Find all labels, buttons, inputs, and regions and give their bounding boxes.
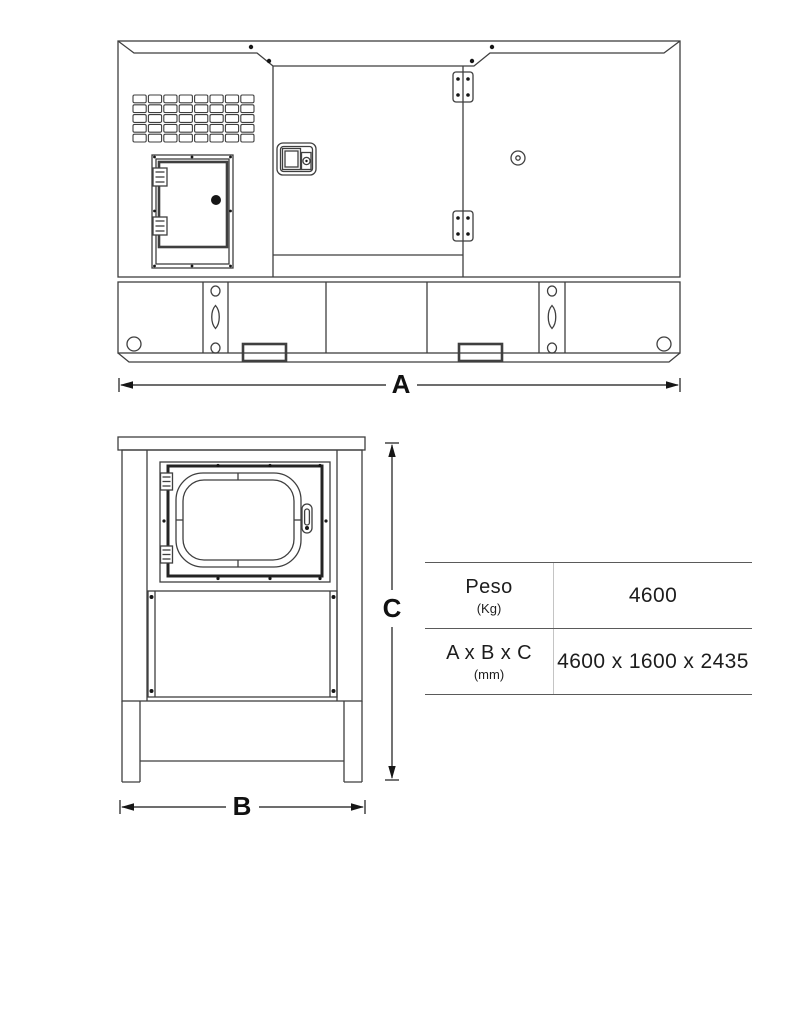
roof-screw-icons — [249, 45, 494, 63]
roof-seam — [118, 41, 680, 66]
generator-technical-drawing: A — [0, 0, 799, 1024]
dimensions-value-cell: 4600 x 1600 x 2435 — [554, 629, 752, 694]
dimension-a-label: A — [392, 369, 411, 399]
door-handle-icon — [302, 504, 312, 533]
weight-value: 4600 — [629, 584, 677, 608]
gasket-inner — [183, 480, 294, 560]
front-door — [160, 462, 330, 582]
dimension-b-label: B — [233, 791, 252, 821]
spec-row-dimensions: A x B x C (mm) 4600 x 1600 x 2435 — [425, 628, 752, 694]
dimensions-value: 4600 x 1600 x 2435 — [557, 650, 749, 674]
access-door — [152, 155, 233, 268]
dimension-a: A — [119, 369, 680, 399]
lower-front-panel — [148, 591, 337, 697]
hinge-icon — [153, 168, 167, 186]
hinge-icon — [161, 546, 173, 563]
spec-row-weight: Peso (Kg) 4600 — [425, 563, 752, 628]
lock-icon — [511, 151, 525, 165]
hinge-icon — [453, 72, 473, 102]
dimensions-unit: (mm) — [474, 667, 504, 682]
dimension-c-label: C — [383, 593, 402, 623]
dimensions-label: A x B x C — [446, 642, 532, 665]
hinge-icon — [161, 473, 173, 490]
weight-header-cell: Peso (Kg) — [425, 563, 554, 628]
lifting-bracket — [539, 282, 565, 353]
hinge-icon — [453, 211, 473, 241]
base-hole — [127, 337, 141, 351]
gasket-outer — [176, 473, 301, 567]
weight-value-cell: 4600 — [554, 563, 752, 628]
vent-grille-icon — [133, 95, 254, 142]
side-view — [118, 41, 680, 277]
door-latch-panel — [277, 143, 316, 175]
roof-cap — [118, 437, 365, 450]
dimensions-header-cell: A x B x C (mm) — [425, 629, 554, 694]
dimension-b: B — [120, 791, 365, 821]
spec-table: Peso (Kg) 4600 A x B x C (mm) 4600 x 160… — [425, 562, 752, 695]
lifting-bracket — [203, 282, 228, 353]
skid-bottom — [118, 353, 680, 362]
door-handle-icon — [211, 195, 221, 205]
base-frame — [118, 282, 680, 362]
hinge-icon — [153, 217, 167, 235]
front-base-legs — [122, 701, 362, 782]
weight-unit: (Kg) — [477, 601, 502, 616]
front-view — [118, 437, 365, 782]
drawing-canvas: A — [0, 0, 799, 1024]
base-hole — [657, 337, 671, 351]
dimension-c: C — [383, 443, 402, 780]
weight-label: Peso — [465, 576, 512, 599]
